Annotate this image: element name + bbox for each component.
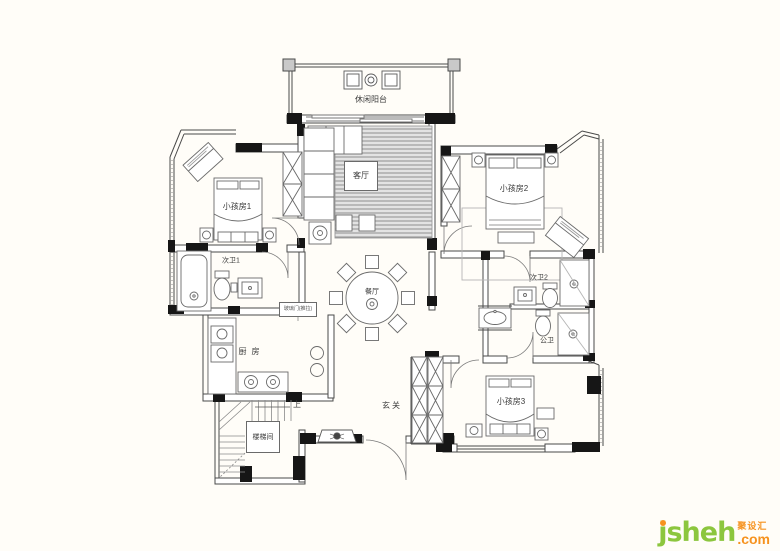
- room-label-bath2: 次卫2: [530, 275, 548, 282]
- hall-wardrobes: [412, 357, 443, 443]
- balcony-planters: [344, 71, 400, 89]
- jsheh-logo[interactable]: jsheh 聚设汇 .com: [658, 519, 770, 546]
- room-label-entry: 玄关: [380, 402, 402, 410]
- floor-plan-drawing: [0, 0, 780, 551]
- room-label-public-bath: 公卫: [540, 338, 554, 345]
- room-label-stairs: 楼梯间: [246, 421, 280, 453]
- kitchen-fixtures: [208, 318, 324, 394]
- room-label-kids3: 小孩房3: [497, 398, 525, 406]
- entry-decor: [318, 430, 356, 442]
- dining-set: [330, 256, 415, 341]
- door-note-label: 玻璃门(推拉): [279, 302, 317, 317]
- logo-tld: .com: [737, 532, 770, 546]
- balcony-pilasters: [283, 59, 460, 71]
- room-label-kids1: 小孩房1: [223, 203, 251, 211]
- room-label-kids2: 小孩房2: [500, 185, 528, 193]
- logo-wordmark: jsheh: [658, 519, 735, 546]
- room-label-balcony: 休闲阳台: [355, 96, 387, 104]
- bath1-fixtures: [177, 251, 262, 311]
- room-label-living: 客厅: [344, 161, 378, 191]
- stairs-up-label: 上: [293, 401, 301, 409]
- kids1-furniture: [183, 142, 302, 242]
- logo-chinese-name: 聚设汇: [737, 522, 767, 531]
- room-label-dining: 餐厅: [365, 289, 379, 296]
- room-label-kitchen: 厨房: [234, 348, 265, 356]
- public-bath-fixtures: [479, 308, 589, 355]
- floor-plan-canvas: 休闲阳台 客厅 小孩房1 次卫1 厨房 玻璃门(推拉) 楼梯间 上 玄关 餐厅 …: [0, 0, 780, 551]
- room-label-bath1: 次卫1: [222, 258, 240, 265]
- kids3-furniture: [466, 376, 554, 440]
